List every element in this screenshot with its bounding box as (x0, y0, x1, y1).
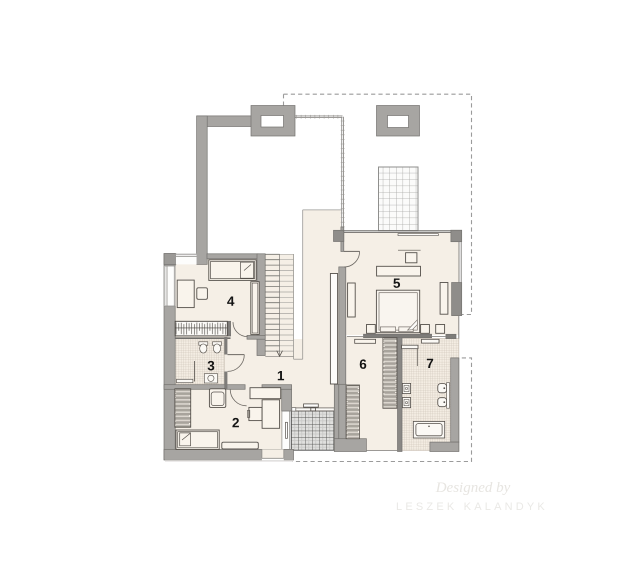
svg-text:Designed by: Designed by (435, 480, 511, 496)
svg-text:LESZEK KALANDYK: LESZEK KALANDYK (396, 501, 548, 513)
